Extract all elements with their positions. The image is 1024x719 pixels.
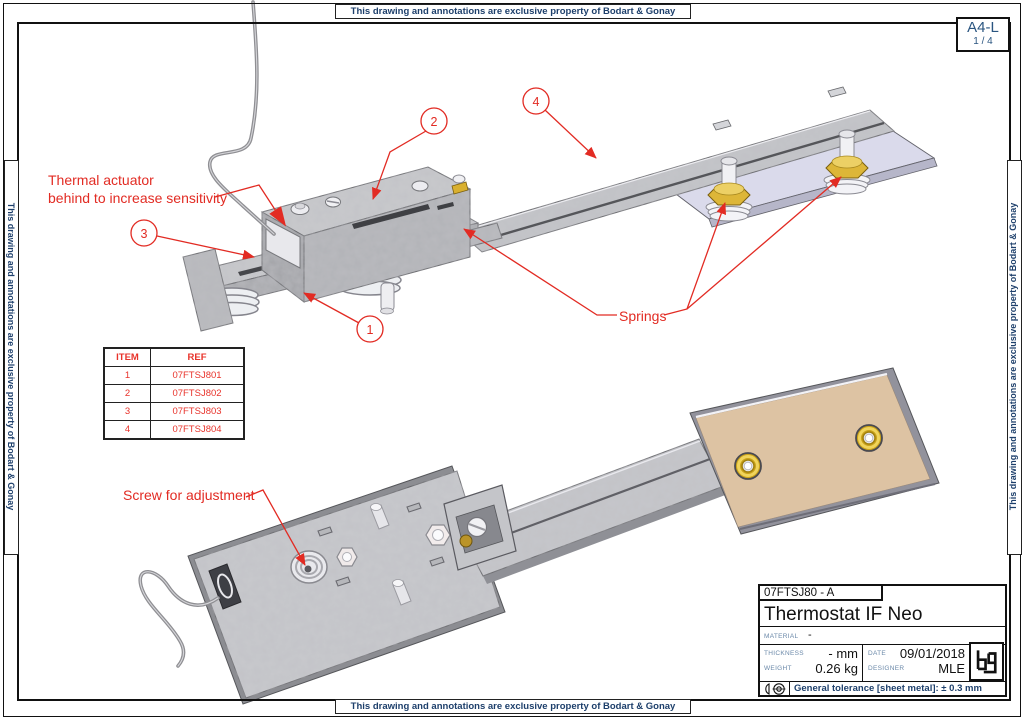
sheet-format: A4-L: [958, 19, 1008, 36]
projection-symbol: [760, 682, 790, 696]
material-value: -: [808, 629, 812, 641]
ref-cell: 07FTSJ801: [151, 367, 245, 385]
parts-table: ITEM REF 1 07FTSJ801 2 07FTSJ802 3 07FTS…: [103, 347, 245, 440]
ref-cell: 07FTSJ803: [151, 403, 245, 421]
table-row: 2 07FTSJ802: [104, 385, 244, 403]
parts-table-header: ITEM REF: [104, 348, 244, 367]
drawing-sheet: 2 4 3 1 Thermal actuator behind to incre…: [0, 0, 1024, 719]
item-cell: 3: [104, 403, 151, 421]
table-row: 1 07FTSJ801: [104, 367, 244, 385]
date-value: 09/01/2018: [860, 646, 965, 661]
table-row: 3 07FTSJ803: [104, 403, 244, 421]
table-row: 4 07FTSJ804: [104, 421, 244, 440]
tolerance-row: General tolerance [sheet metal]: ± 0.3 m…: [760, 681, 1005, 695]
item-cell: 1: [104, 367, 151, 385]
ref-cell: 07FTSJ802: [151, 385, 245, 403]
bg-logo-glyph: [971, 644, 1001, 678]
property-notice-right: This drawing and annotations are exclusi…: [1007, 160, 1020, 553]
property-notice-bottom: This drawing and annotations are exclusi…: [335, 699, 691, 714]
property-notice-top: This drawing and annotations are exclusi…: [335, 4, 691, 19]
designer-value: MLE: [860, 661, 965, 676]
general-tolerance: General tolerance [sheet metal]: ± 0.3 m…: [794, 682, 982, 696]
property-notice-left: This drawing and annotations are exclusi…: [4, 160, 17, 553]
sheet-page-number: 1 / 4: [958, 36, 1008, 48]
sheet-format-box: A4-L 1 / 4: [956, 17, 1010, 52]
item-cell: 2: [104, 385, 151, 403]
bg-logo: [969, 642, 1004, 681]
col-header-item: ITEM: [104, 348, 151, 367]
weight-label: WEIGHT: [764, 665, 792, 672]
item-cell: 4: [104, 421, 151, 440]
col-header-ref: REF: [151, 348, 245, 367]
title-block: 07FTSJ80 - A Thermostat IF Neo MATERIAL …: [758, 584, 1007, 697]
weight-value: 0.26 kg: [790, 661, 858, 676]
drawing-number: 07FTSJ80 - A: [760, 586, 883, 601]
thickness-value: - mm: [790, 646, 858, 661]
drawing-title: Thermostat IF Neo: [760, 601, 1005, 627]
ref-cell: 07FTSJ804: [151, 421, 245, 440]
material-label: MATERIAL: [764, 633, 798, 640]
